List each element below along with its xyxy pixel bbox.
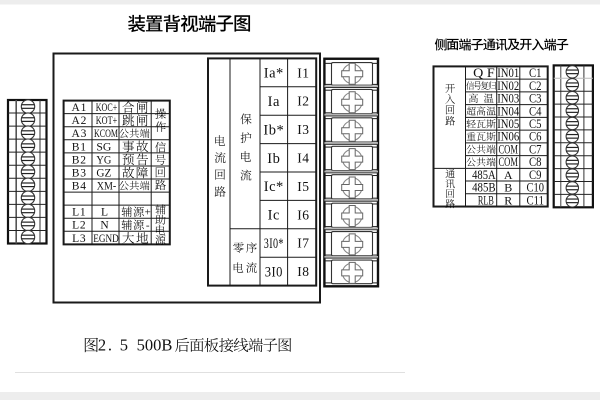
svg-text:-: -	[146, 220, 150, 232]
svg-text:B2: B2	[72, 154, 87, 166]
svg-text:I8: I8	[297, 264, 309, 279]
svg-text:3I0: 3I0	[265, 264, 283, 280]
svg-text:Ib*: Ib*	[263, 122, 284, 138]
svg-text:RLB: RLB	[478, 193, 494, 207]
svg-text:Ic*: Ic*	[264, 179, 284, 195]
svg-text:2. 5: 2. 5	[98, 336, 130, 355]
svg-text:I3: I3	[297, 122, 309, 137]
svg-text:B1: B1	[72, 141, 87, 153]
svg-text:N: N	[100, 220, 109, 232]
svg-text:500B: 500B	[137, 336, 173, 355]
svg-text:I7: I7	[297, 236, 309, 251]
svg-text:I1: I1	[297, 65, 309, 80]
svg-text:A3: A3	[71, 128, 87, 140]
svg-text:KCOM: KCOM	[94, 128, 118, 140]
svg-text:L3: L3	[72, 233, 86, 245]
svg-text:EGND: EGND	[93, 233, 119, 245]
svg-text:A1: A1	[71, 102, 87, 114]
svg-text:L2: L2	[72, 220, 86, 232]
svg-text:Ia: Ia	[268, 94, 280, 110]
svg-text:Ic: Ic	[268, 208, 280, 224]
svg-text:I5: I5	[297, 179, 309, 194]
svg-text:A2: A2	[71, 115, 87, 127]
svg-text:SG: SG	[96, 141, 111, 153]
svg-text:Q F: Q F	[473, 66, 495, 80]
svg-text:KOT+: KOT+	[96, 115, 118, 127]
svg-text:KOC+: KOC+	[96, 102, 118, 114]
svg-text:R: R	[504, 193, 512, 207]
svg-text:XM-: XM-	[97, 181, 117, 193]
svg-text:YG: YG	[96, 154, 111, 166]
svg-text:Ia*: Ia*	[264, 66, 284, 82]
svg-text:C11: C11	[526, 193, 544, 207]
svg-text:B3: B3	[72, 168, 87, 180]
svg-text:I6: I6	[297, 207, 309, 222]
svg-text:L: L	[101, 207, 108, 219]
svg-text:Ib: Ib	[267, 151, 280, 167]
svg-text:GZ: GZ	[96, 168, 111, 180]
svg-text:+: +	[145, 207, 151, 219]
svg-text:I4: I4	[297, 151, 309, 166]
svg-text:L1: L1	[72, 207, 86, 219]
svg-text:3I0*: 3I0*	[264, 236, 284, 252]
svg-text:I2: I2	[297, 94, 309, 109]
svg-text:B4: B4	[72, 181, 87, 193]
